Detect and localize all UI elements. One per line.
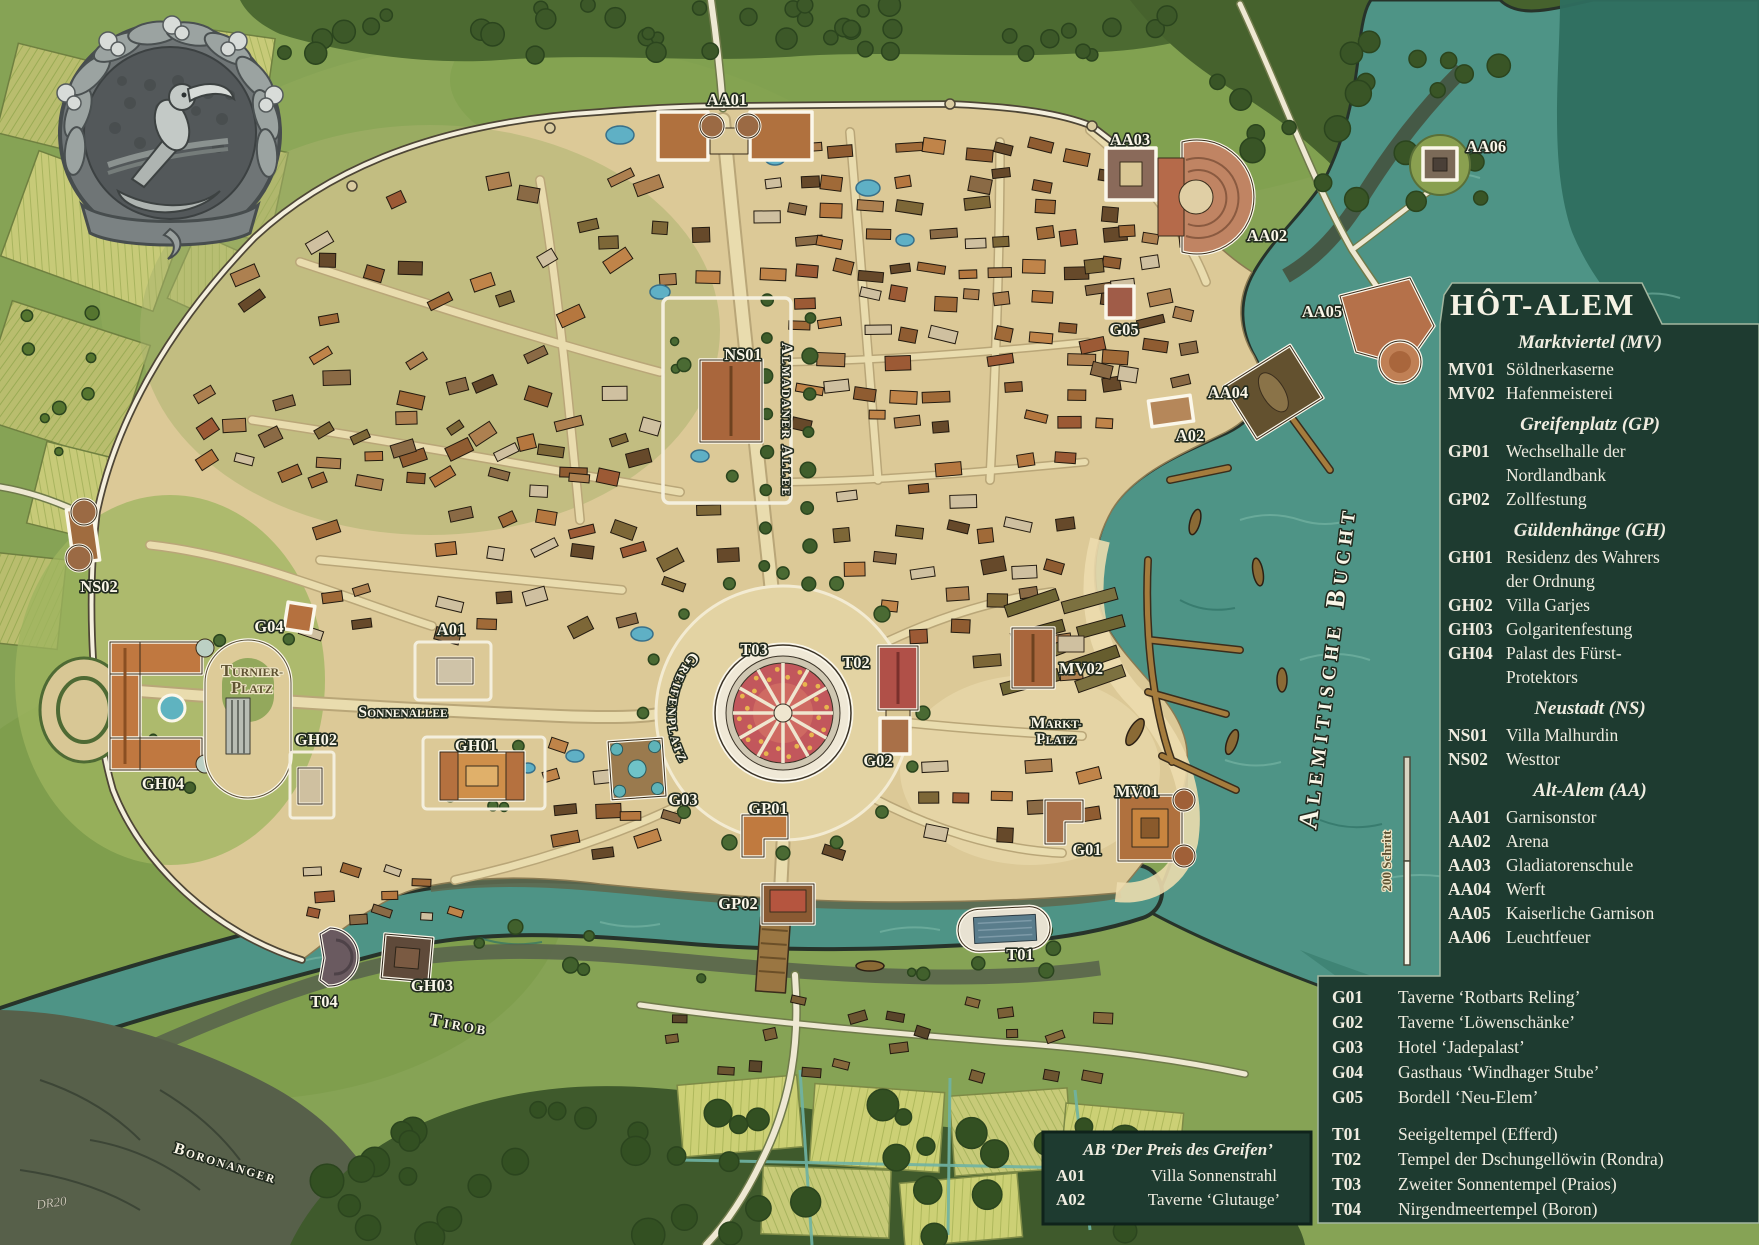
adventure-box: AB ‘Der Preis des Greifen’ A01Villa Sonn… (1048, 1138, 1308, 1212)
poi-code: AA06 (1448, 925, 1506, 949)
map-label-AA06: AA06 (1466, 137, 1506, 156)
legend-row: GP01Wechselhalle der Nordlandbank (1448, 439, 1750, 487)
building (1029, 332, 1053, 344)
tree (803, 539, 817, 553)
poi-code: GH02 (1448, 593, 1506, 617)
building (319, 253, 336, 267)
poi-row: G05Bordell ‘Neu-Elem’ (1332, 1085, 1752, 1110)
tree (907, 761, 918, 772)
tree (648, 654, 659, 665)
map-label-AA03: AA03 (1110, 130, 1150, 149)
building (935, 462, 962, 477)
tree (693, 1, 707, 15)
building (1012, 565, 1037, 579)
building (922, 137, 946, 154)
tree (355, 1215, 380, 1240)
building (1005, 382, 1023, 393)
legend-row: NS02Westtor (1448, 747, 1750, 771)
building (315, 891, 335, 903)
tree (1340, 42, 1362, 64)
poi-name: Westtor (1506, 747, 1750, 771)
building (966, 148, 993, 162)
poi-name: Taverne ‘Glutauge’ (1120, 1188, 1308, 1212)
building (1102, 350, 1128, 365)
map-label-GP02: GP02 (718, 894, 757, 913)
building (1093, 1012, 1113, 1024)
landmark-turnierplatz (205, 640, 291, 798)
tree (40, 414, 49, 423)
building (1035, 199, 1055, 213)
legend-row: MV02Hafenmeisterei (1448, 381, 1750, 405)
tree (581, 0, 595, 12)
building (993, 236, 1009, 247)
tree (762, 333, 772, 343)
building (833, 528, 850, 543)
building (946, 587, 969, 601)
tree (508, 920, 523, 935)
building (991, 791, 1012, 800)
tree (310, 1164, 344, 1198)
map-label-AA01: AA01 (707, 90, 747, 109)
building (1119, 225, 1135, 237)
tree (1018, 46, 1033, 61)
building (993, 291, 1010, 305)
poi-name: Residenz des Wahrers der Ordnung (1506, 545, 1750, 593)
tree (55, 447, 63, 455)
building (934, 296, 957, 312)
map-label-MV01: MV01 (1115, 782, 1159, 801)
tree (719, 1152, 739, 1172)
poi-name: Nirgendmeertempel (Boron) (1398, 1197, 1597, 1222)
building (323, 370, 351, 385)
landmark-T03 (715, 645, 851, 781)
building (965, 238, 986, 248)
legend-row: GH03Golgaritenfestung (1448, 617, 1750, 641)
tree (1157, 6, 1177, 26)
building (930, 228, 957, 239)
building (1179, 341, 1198, 356)
building (1068, 354, 1096, 366)
building (844, 562, 865, 576)
building (995, 326, 1014, 343)
tree (642, 27, 654, 39)
tree (719, 1222, 742, 1245)
tree (1003, 29, 1017, 43)
map-label-T02: T02 (842, 653, 870, 672)
landmark-A02 (1148, 395, 1193, 427)
building (1058, 416, 1081, 428)
map-label-G01: G01 (1072, 840, 1101, 859)
tree (801, 502, 813, 514)
tree (878, 0, 900, 16)
poi-row: T01Seeigeltempel (Efferd) (1332, 1122, 1752, 1147)
building (820, 203, 842, 218)
poi-code: G05 (1332, 1085, 1398, 1110)
legend-row: NS01Villa Malhurdin (1448, 723, 1750, 747)
poi-legend-panel: G01Taverne ‘Rotbarts Reling’G02Taverne ‘… (1332, 985, 1752, 1234)
legend-row: AA01Garnisonstor (1448, 805, 1750, 829)
building (899, 327, 918, 343)
poi-name: Gasthaus ‘Windhager Stube’ (1398, 1060, 1599, 1085)
building (1059, 229, 1077, 246)
building (307, 907, 321, 918)
map-label-NS01: NS01 (724, 345, 762, 364)
building (977, 528, 994, 544)
tree (867, 1089, 898, 1120)
tree (1455, 65, 1473, 83)
tree (667, 1147, 685, 1165)
poi-name: Taverne ‘Löwenschänke’ (1398, 1010, 1575, 1035)
map-label-G04: G04 (254, 617, 283, 636)
tree (85, 306, 99, 320)
adventure-row: A02Taverne ‘Glutauge’ (1048, 1188, 1308, 1212)
tree (1041, 30, 1059, 48)
tree (399, 1131, 420, 1152)
poi-code: A02 (1048, 1188, 1120, 1212)
tree (563, 957, 579, 973)
tree (857, 5, 869, 17)
map-label-A02: A02 (1176, 426, 1204, 445)
building (1056, 517, 1076, 531)
poi-code: AA03 (1448, 853, 1506, 877)
tree (536, 9, 556, 29)
building (922, 761, 949, 773)
building (754, 211, 780, 223)
building (858, 270, 884, 282)
tree (526, 46, 544, 64)
building (801, 176, 819, 188)
tree (1076, 44, 1090, 58)
poi-name: Gladiatorenschule (1506, 853, 1750, 877)
tree (761, 446, 774, 459)
tree (513, 740, 524, 751)
tree (363, 18, 380, 35)
tree (86, 353, 95, 362)
tree (1046, 941, 1060, 955)
map-label-scale_label: 200 Schritt (1379, 830, 1394, 892)
map-label-G02: G02 (863, 751, 892, 770)
building (435, 542, 457, 557)
building (951, 619, 970, 633)
poi-code: T02 (1332, 1147, 1398, 1172)
building (665, 1034, 678, 1043)
building (885, 356, 911, 371)
poi-group: G01Taverne ‘Rotbarts Reling’G02Taverne ‘… (1332, 985, 1752, 1110)
tree (305, 42, 327, 64)
tree (1230, 89, 1252, 111)
tree (621, 1136, 650, 1165)
tree (283, 634, 294, 645)
tree (548, 1102, 565, 1119)
building (303, 867, 321, 876)
tree (804, 388, 816, 400)
building (398, 261, 422, 275)
tree (677, 358, 691, 372)
tree (761, 294, 773, 306)
building (1117, 366, 1138, 383)
poi-code: MV02 (1448, 381, 1506, 405)
legend-section: Güldenhänge (GH)GH01Residenz des Wahrers… (1448, 520, 1750, 689)
building (869, 410, 885, 419)
legend-sections: Marktviertel (MV)MV01SöldnerkaserneMV02H… (1448, 332, 1750, 949)
tree (1240, 138, 1265, 163)
poi-code: AA04 (1448, 877, 1506, 901)
map-label-A01: A01 (437, 620, 465, 639)
building (571, 544, 594, 560)
tree (704, 1099, 732, 1127)
map-label-T04: T04 (310, 992, 338, 1011)
poi-code: T04 (1332, 1197, 1398, 1222)
tree (1406, 191, 1426, 211)
landmark-AA03 (1106, 148, 1156, 200)
tree (278, 46, 292, 60)
bridge (755, 917, 790, 993)
building (959, 270, 977, 279)
poi-name: Golgaritenfestung (1506, 617, 1750, 641)
legend-section-header: Güldenhänge (GH) (1448, 520, 1732, 542)
tree (797, 0, 813, 13)
map-label-T03: T03 (740, 640, 768, 659)
building (659, 274, 676, 286)
poi-name: Hotel ‘Jadepalast’ (1398, 1035, 1525, 1060)
adventure-box-rows: A01Villa SonnenstrahlA02Taverne ‘Glutaug… (1048, 1164, 1308, 1212)
tree (632, 1218, 665, 1245)
tree (746, 1196, 771, 1221)
legend-section: Marktviertel (MV)MV01SöldnerkaserneMV02H… (1448, 332, 1750, 405)
legend-row: AA06Leuchtfeuer (1448, 925, 1750, 949)
map-label-NS02: NS02 (80, 577, 118, 596)
building (1142, 232, 1159, 244)
building (697, 505, 721, 516)
building (1102, 256, 1121, 269)
building (749, 1061, 762, 1072)
tree (578, 963, 590, 975)
tree (791, 1187, 821, 1217)
tree (800, 462, 815, 477)
building (1017, 453, 1035, 468)
tree (348, 1156, 374, 1182)
building (692, 227, 710, 242)
poi-code: AA01 (1448, 805, 1506, 829)
building (1006, 1029, 1017, 1037)
tree (1409, 50, 1426, 67)
building (820, 175, 843, 191)
poi-name: Palast des Fürst- Protektors (1506, 641, 1750, 689)
poi-name: Söldnerkaserne (1506, 357, 1750, 381)
tree (1324, 116, 1350, 142)
tree (481, 23, 504, 46)
building (696, 271, 720, 284)
building (866, 229, 891, 240)
map-label-G05: G05 (1109, 320, 1138, 339)
poi-name: Hafenmeisterei (1506, 381, 1750, 405)
legend-section: Neustadt (NS)NS01Villa MalhurdinNS02West… (1448, 698, 1750, 771)
landmark-T02 (878, 646, 918, 717)
poi-code: G04 (1332, 1060, 1398, 1085)
building (1084, 258, 1104, 274)
tree (802, 577, 816, 591)
map-label-GH04: GH04 (142, 774, 184, 793)
map-label-AA02: AA02 (1247, 226, 1287, 245)
building (964, 196, 991, 210)
map-label-G03: G03 (668, 790, 697, 809)
building (794, 298, 815, 309)
building (953, 793, 969, 803)
tree (874, 606, 890, 622)
poi-name: Bordell ‘Neu-Elem’ (1398, 1085, 1538, 1110)
map-label-GH02: GH02 (295, 730, 337, 749)
building (1022, 259, 1045, 273)
legend-row: AA02Arena (1448, 829, 1750, 853)
tree (184, 782, 195, 793)
building (1036, 226, 1054, 240)
poi-code: T03 (1332, 1172, 1398, 1197)
building (602, 386, 627, 400)
tree (1210, 74, 1225, 89)
legend-section: Greifenplatz (GP)GP01Wechselhalle der No… (1448, 414, 1750, 511)
tree (740, 8, 757, 25)
building (530, 485, 548, 497)
landmark-G05 (1106, 286, 1134, 318)
building (1043, 1069, 1059, 1081)
tree (21, 310, 32, 321)
tree (972, 957, 985, 970)
tree (338, 1195, 360, 1217)
tree (981, 1140, 1009, 1168)
building (316, 457, 341, 469)
tree (530, 1102, 546, 1118)
poi-code: AA02 (1448, 829, 1506, 853)
tree (802, 348, 818, 364)
tree (747, 1108, 770, 1131)
tree (22, 343, 34, 355)
legend-row: AA03Gladiatorenschule (1448, 853, 1750, 877)
building (322, 591, 343, 604)
landmark-G03 (608, 738, 666, 800)
poi-code: T01 (1332, 1122, 1398, 1147)
tree (1039, 963, 1054, 978)
tree (437, 1207, 462, 1232)
building (477, 618, 497, 629)
building (950, 495, 977, 509)
building (765, 178, 782, 189)
building (421, 912, 433, 920)
building (895, 175, 912, 188)
building (836, 490, 857, 502)
building (910, 629, 928, 644)
building (569, 473, 590, 483)
legend-panel: HÔT-ALEM Marktviertel (MV)MV01Söldnerkas… (1448, 287, 1750, 949)
tree (727, 470, 738, 481)
building (827, 145, 852, 159)
tree (1103, 18, 1121, 36)
building (932, 421, 949, 433)
building (718, 1067, 735, 1076)
building (889, 1042, 908, 1054)
tree (1487, 54, 1510, 77)
building (1140, 255, 1159, 270)
building (1055, 452, 1076, 464)
poi-row: T04Nirgendmeertempel (Boron) (1332, 1197, 1752, 1222)
tree (679, 609, 689, 619)
tree (777, 567, 789, 579)
building (222, 418, 246, 432)
poi-code: G01 (1332, 985, 1398, 1010)
building (873, 551, 896, 564)
building (992, 167, 1011, 178)
tree (637, 707, 648, 718)
poi-row: G02Taverne ‘Löwenschänke’ (1332, 1010, 1752, 1035)
building (412, 879, 431, 887)
scale-bar (1404, 757, 1410, 965)
tree (760, 522, 772, 534)
building (894, 415, 921, 428)
building (1068, 390, 1086, 401)
poi-row: G03Hotel ‘Jadepalast’ (1332, 1035, 1752, 1060)
building (817, 352, 845, 366)
tree (805, 313, 815, 323)
building (865, 325, 891, 335)
legend-row: AA05Kaiserliche Garnison (1448, 901, 1750, 925)
landmark-AA06 (1410, 135, 1470, 195)
poi-code: GP01 (1448, 439, 1506, 487)
poi-name: Zweiter Sonnentempel (Praios) (1398, 1172, 1617, 1197)
tree (921, 1223, 947, 1245)
tree (702, 43, 718, 59)
poi-code: A01 (1048, 1164, 1120, 1188)
map-label-AA04: AA04 (1208, 383, 1248, 402)
building (352, 618, 372, 629)
adventure-box-title: AB ‘Der Preis des Greifen’ (1048, 1140, 1308, 1160)
building (620, 811, 641, 820)
legend-section-header: Neustadt (NS) (1448, 698, 1732, 720)
building (1025, 759, 1052, 773)
map-label-AA05: AA05 (1302, 302, 1342, 321)
legend-row: GH01Residenz des Wahrers der Ordnung (1448, 545, 1750, 593)
building (1101, 207, 1118, 223)
building (1059, 323, 1077, 334)
tree (605, 8, 625, 28)
tree (730, 1116, 748, 1134)
tree (380, 9, 392, 21)
building (536, 509, 558, 525)
building (382, 891, 398, 900)
legend-row: AA04Werft (1448, 877, 1750, 901)
poi-code: GH03 (1448, 617, 1506, 641)
tree (672, 1205, 698, 1231)
tree (1345, 187, 1369, 211)
poi-name: Seeigeltempel (Efferd) (1398, 1122, 1558, 1147)
tree (646, 42, 666, 62)
fantasy-city-map: AA01AA03AA06AA02G05AA05AA04A02NS01NS02G0… (0, 0, 1759, 1245)
tree (1441, 52, 1457, 68)
building (349, 914, 367, 925)
tree (575, 1107, 597, 1129)
building (919, 792, 939, 803)
building (988, 267, 1012, 277)
map-label-GH03: GH03 (411, 976, 453, 995)
legend-section: Alt-Alem (AA)AA01GarnisonstorAA02ArenaAA… (1448, 780, 1750, 949)
poi-code: NS01 (1448, 723, 1506, 747)
map-label-GP01: GP01 (748, 799, 787, 818)
tree (502, 1148, 528, 1174)
building (973, 654, 1001, 668)
building (963, 289, 979, 300)
poi-code: GH01 (1448, 545, 1506, 593)
building (554, 804, 577, 816)
landmark-GH03 (381, 934, 433, 982)
building (365, 452, 383, 461)
